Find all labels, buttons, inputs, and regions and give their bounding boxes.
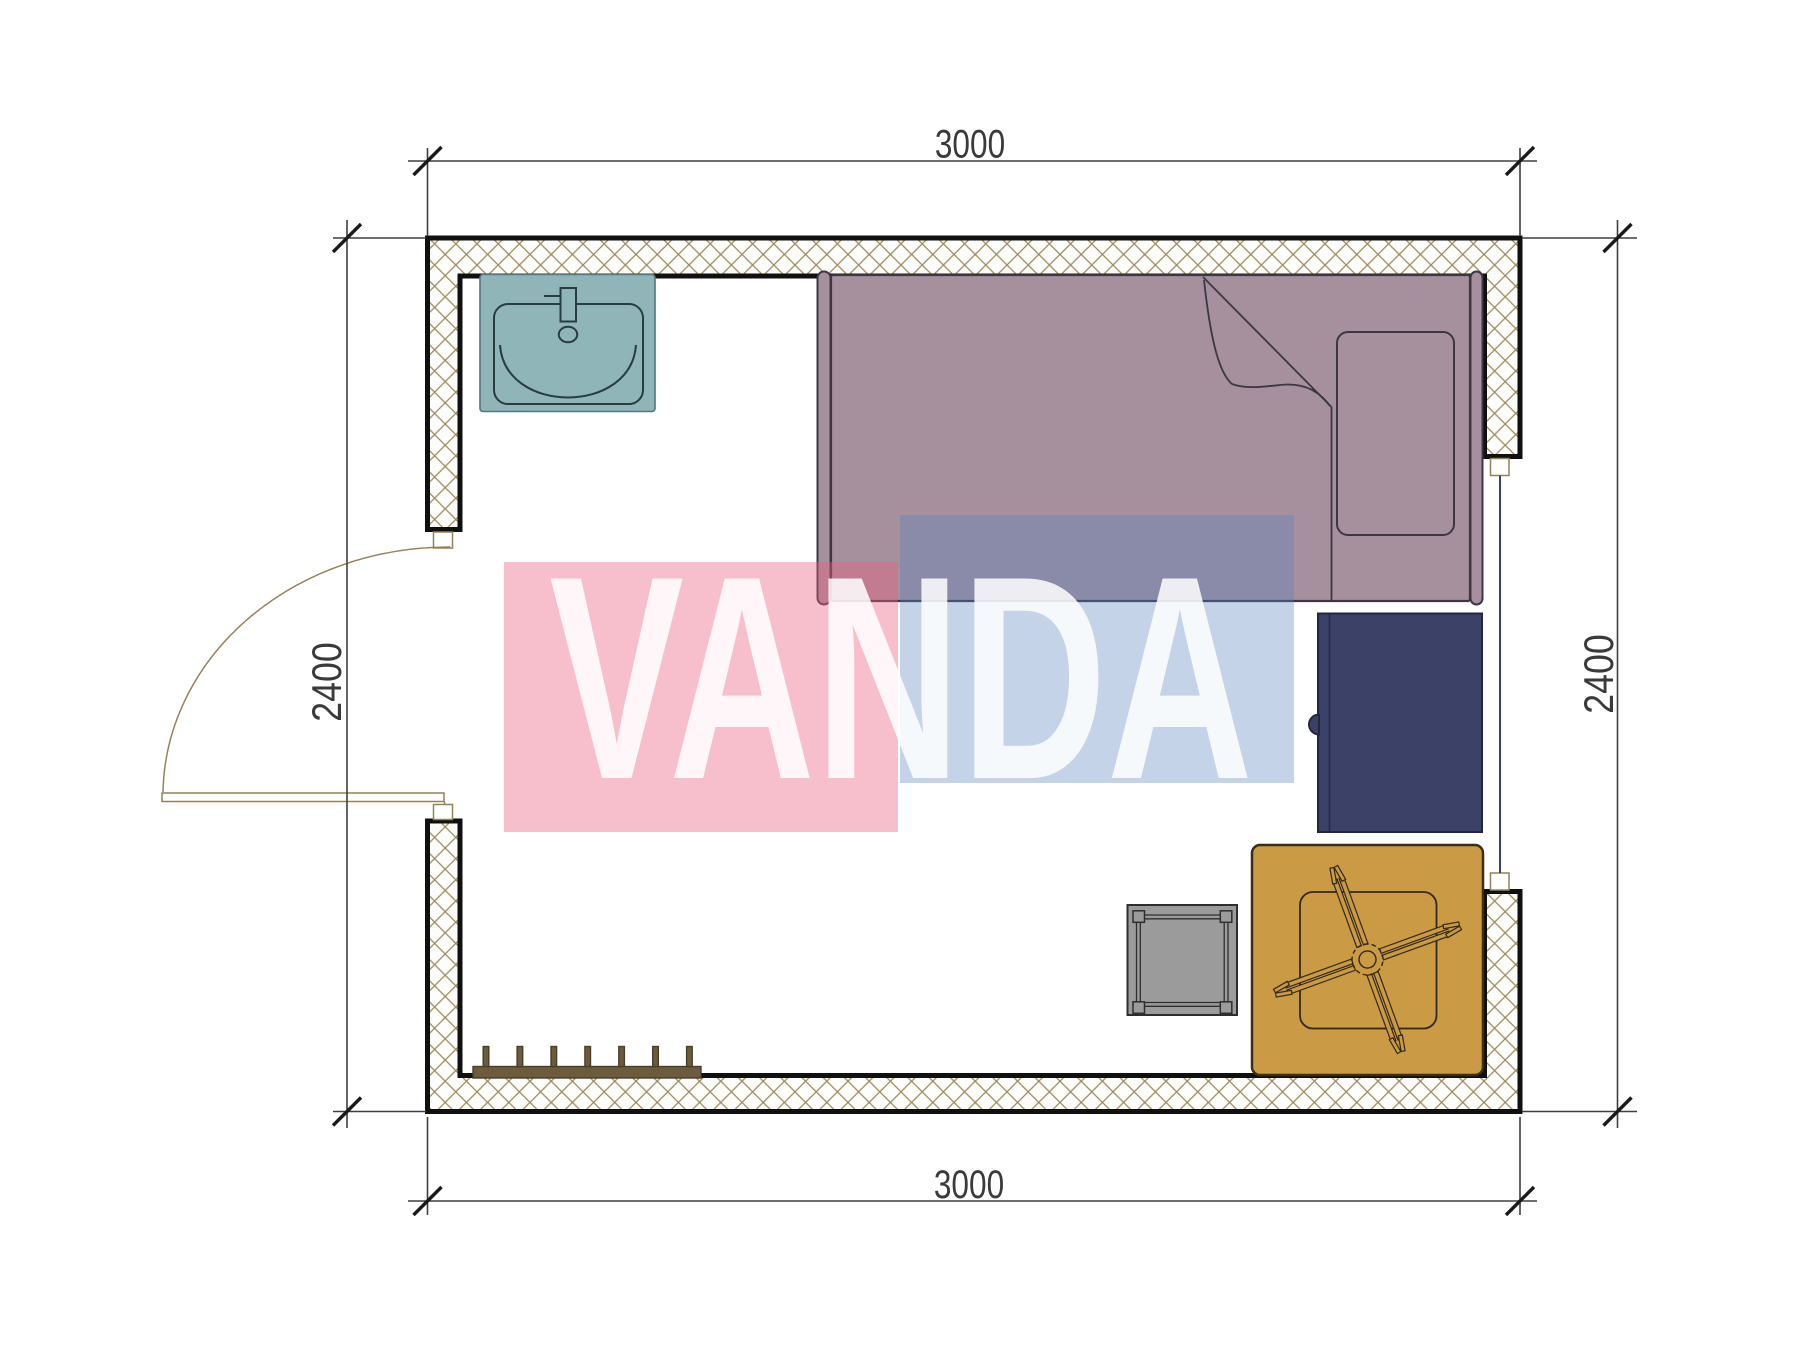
- svg-text:3000: 3000: [934, 1161, 1004, 1206]
- svg-text:VANDA: VANDA: [549, 516, 1253, 840]
- svg-text:3000: 3000: [935, 121, 1005, 166]
- svg-text:2400: 2400: [304, 642, 350, 721]
- svg-text:2400: 2400: [1576, 634, 1622, 713]
